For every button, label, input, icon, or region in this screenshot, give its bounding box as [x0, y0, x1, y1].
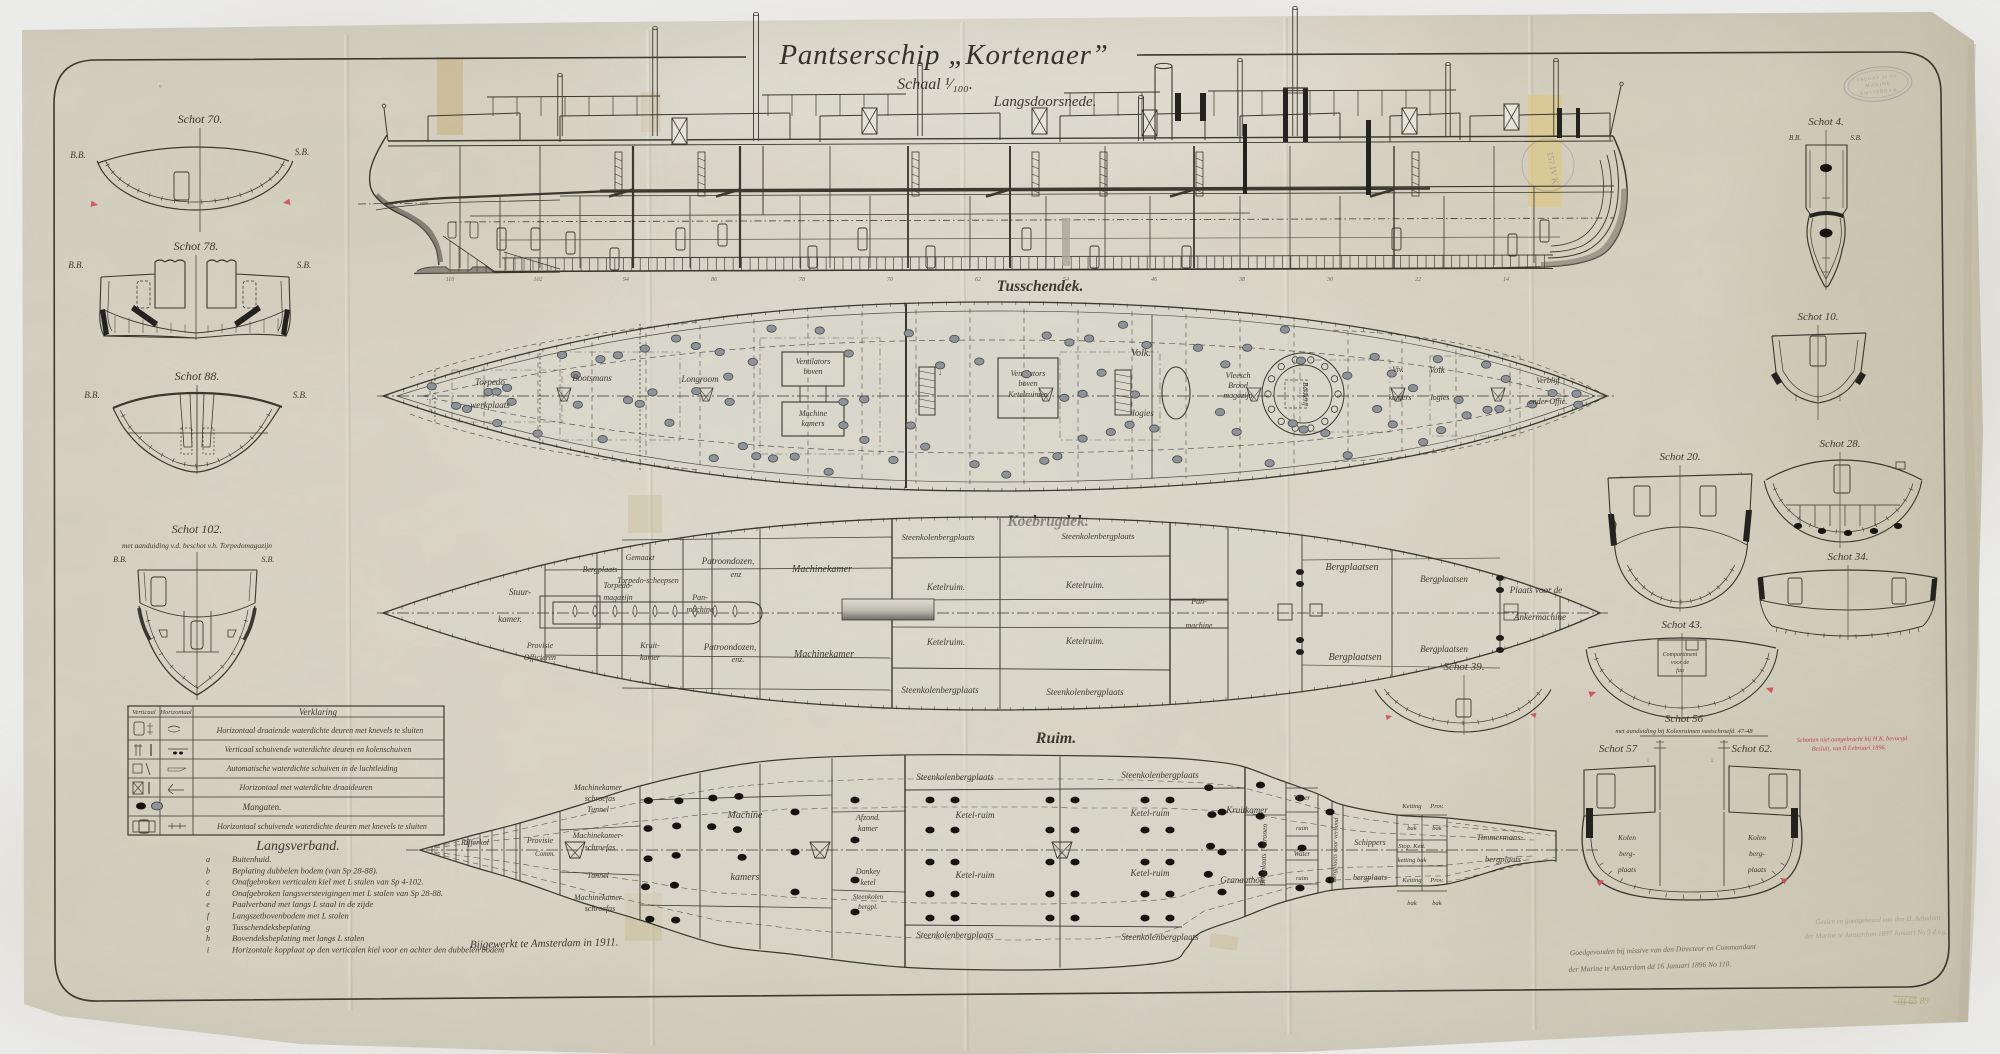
- svg-text:Ketel-ruim: Ketel-ruim: [1130, 868, 1170, 878]
- svg-text:°: °: [159, 84, 162, 92]
- svg-text:↓: ↓: [1646, 756, 1650, 764]
- svg-text:Granaathok: Granaathok: [1220, 875, 1265, 885]
- svg-text:Gemaakt: Gemaakt: [626, 553, 656, 562]
- svg-text:S.B.: S.B.: [297, 260, 312, 270]
- svg-text:Timmermans-: Timmermans-: [1477, 832, 1524, 842]
- svg-text:B.B.: B.B.: [1789, 134, 1801, 142]
- svg-text:Schot 88.: Schot 88.: [175, 369, 220, 383]
- svg-text:110: 110: [446, 277, 455, 283]
- svg-text:Horizontaal met waterdichte dr: Horizontaal met waterdichte draaideuren: [239, 783, 373, 792]
- svg-text:Steenkolen: Steenkolen: [853, 893, 884, 901]
- svg-text:Longroom: Longroom: [680, 374, 719, 384]
- svg-text:Bootsmans: Bootsmans: [572, 373, 612, 383]
- svg-text:c: c: [206, 878, 210, 887]
- svg-text:Machinekamer: Machinekamer: [791, 564, 852, 575]
- svg-text:Water: Water: [1294, 794, 1311, 802]
- svg-text:Horizontaal schuivende waterdi: Horizontaal schuivende waterdichte deure…: [216, 822, 427, 831]
- svg-text:e: e: [206, 900, 210, 909]
- svg-text:Bergplaats: Bergplaats: [583, 565, 618, 574]
- svg-text:Plaats voor de: Plaats voor de: [1509, 585, 1563, 595]
- svg-text:Patroondozen,: Patroondozen,: [701, 556, 754, 566]
- svg-text:boven: boven: [803, 367, 822, 376]
- svg-text:Pan-: Pan-: [1190, 597, 1207, 606]
- svg-text:Stop. Kett.: Stop. Kett.: [1398, 843, 1426, 850]
- svg-text:i: i: [207, 945, 209, 954]
- svg-text:Schot 57: Schot 57: [1599, 743, 1638, 755]
- svg-text:schroefas: schroefas: [585, 843, 615, 852]
- svg-text:Schot 4.: Schot 4.: [1808, 116, 1843, 128]
- svg-text:b: b: [206, 866, 210, 875]
- svg-text:↓: ↓: [938, 368, 942, 377]
- svg-text:Water: Water: [1294, 850, 1311, 858]
- svg-text:schroefas: schroefas: [585, 904, 615, 913]
- svg-text:Stuur-: Stuur-: [509, 587, 531, 597]
- svg-text:Bergplaatsen: Bergplaatsen: [1420, 644, 1468, 654]
- svg-text:Compartiment: Compartiment: [1663, 652, 1698, 658]
- svg-text:Provisie: Provisie: [526, 641, 554, 650]
- svg-text:Donkey: Donkey: [855, 867, 881, 876]
- svg-text:Schot 10.: Schot 10.: [1798, 311, 1839, 323]
- svg-text:Bergplaatsen: Bergplaatsen: [1329, 652, 1382, 663]
- svg-text:berg-: berg-: [1619, 849, 1635, 858]
- svg-text:Steenkolenbergplaats: Steenkolenbergplaats: [1062, 531, 1136, 541]
- svg-text:Verklaring: Verklaring: [299, 707, 337, 717]
- svg-text:Verticaal: Verticaal: [132, 709, 156, 716]
- svg-text:enz: enz: [731, 570, 743, 579]
- svg-text:S.B.: S.B.: [262, 555, 275, 564]
- svg-text:plaats: plaats: [1617, 865, 1636, 874]
- svg-text:Ventilators: Ventilators: [796, 357, 831, 366]
- svg-text:met aanduiding bij Kolenruimen: met aanduiding bij Kolenruimen vastschro…: [1615, 728, 1753, 735]
- svg-text:Vleesch: Vleesch: [1226, 371, 1251, 380]
- svg-text:Verticaal schuivende waterdich: Verticaal schuivende waterdichte deuren …: [225, 745, 412, 754]
- svg-text:22: 22: [1415, 277, 1421, 283]
- svg-text:70: 70: [887, 277, 893, 283]
- svg-text:Steenkolenbergplaats: Steenkolenbergplaats: [1121, 932, 1199, 942]
- svg-text:bergplaats: bergplaats: [1353, 873, 1387, 882]
- svg-text:78: 78: [799, 277, 805, 283]
- svg-text:machine: machine: [686, 605, 714, 614]
- svg-text:Buitenhuid.: Buitenhuid.: [232, 854, 271, 864]
- svg-text:Brood: Brood: [1228, 381, 1249, 390]
- svg-text:Onafgebroken langsversteviging: Onafgebroken langsverstevigingen met L s…: [232, 888, 443, 898]
- svg-text:Ketelruim.: Ketelruim.: [926, 637, 965, 647]
- svg-text:kamers: kamers: [731, 872, 760, 883]
- svg-text:Horizontaal: Horizontaal: [159, 709, 192, 716]
- svg-text:bergplaats: bergplaats: [1485, 854, 1522, 864]
- svg-text:Torpedo: Torpedo: [475, 377, 505, 387]
- svg-text:Steenkolenbergplaats: Steenkolenbergplaats: [916, 930, 994, 940]
- svg-text:Tusschendek.: Tusschendek.: [997, 278, 1084, 295]
- svg-text:Schot 20.: Schot 20.: [1660, 451, 1701, 463]
- svg-text:Bergplaatsen: Bergplaatsen: [1326, 562, 1379, 573]
- svg-text:Patroondozen,: Patroondozen,: [703, 642, 756, 652]
- svg-text:Ketelruim.: Ketelruim.: [926, 582, 965, 592]
- svg-text:Onafgebroken verticalen kiel m: Onafgebroken verticalen kiel met L stale…: [232, 877, 423, 887]
- svg-text:logies: logies: [1132, 408, 1154, 418]
- svg-text:Kruit-: Kruit-: [639, 641, 660, 650]
- svg-text:Ketelruim.: Ketelruim.: [1065, 580, 1104, 590]
- svg-text:plaats: plaats: [1747, 865, 1766, 874]
- svg-text:Schot 56: Schot 56: [1665, 713, 1704, 725]
- svg-text:Horizontaal draaiende waterdic: Horizontaal draaiende waterdichte deuren…: [216, 726, 424, 735]
- svg-text:logies: logies: [1430, 393, 1449, 402]
- svg-text:S.B.: S.B.: [1850, 134, 1862, 142]
- svg-text:Kruitkamer: Kruitkamer: [1225, 805, 1268, 815]
- svg-text:…: …: [427, 394, 433, 402]
- svg-text:Ketel-ruim: Ketel-ruim: [1130, 808, 1170, 818]
- svg-text:Ketting: Ketting: [1401, 877, 1422, 884]
- svg-text:Schippers: Schippers: [1354, 838, 1386, 847]
- svg-text:S.B.: S.B.: [293, 390, 308, 400]
- svg-text:Ketel-ruim: Ketel-ruim: [955, 810, 995, 820]
- svg-text:←: ←: [1619, 472, 1626, 480]
- svg-text:Beplating dubbelen bodem (van: Beplating dubbelen bodem (van Sp 28-88).: [232, 865, 378, 875]
- svg-text:kamer.: kamer.: [498, 614, 522, 624]
- svg-text:ketting bak: ketting bak: [1398, 857, 1427, 864]
- svg-text:g: g: [206, 923, 210, 932]
- svg-text:schroefas: schroefas: [585, 794, 615, 803]
- svg-text:↓: ↓: [1710, 756, 1714, 764]
- svg-text:voor de: voor de: [1671, 660, 1689, 666]
- svg-text:Bergplaatsen: Bergplaatsen: [1420, 574, 1468, 584]
- svg-text:Pan-: Pan-: [691, 593, 708, 602]
- svg-text:Machine: Machine: [798, 409, 827, 418]
- svg-text:Prov.: Prov.: [1429, 803, 1444, 810]
- svg-text:a: a: [206, 855, 210, 864]
- svg-text:B.B.: B.B.: [84, 390, 100, 400]
- svg-text:bak: bak: [1432, 825, 1442, 832]
- svg-text:kamers: kamers: [801, 419, 824, 428]
- svg-text:Steenkolenbergplaats: Steenkolenbergplaats: [916, 772, 994, 782]
- svg-text:Automatische waterdichte schui: Automatische waterdichte schuiven in de …: [226, 764, 398, 773]
- svg-text:met aanduiding v.d. beschot v.: met aanduiding v.d. beschot v.h. Torpedo…: [122, 541, 272, 550]
- svg-text:Rifferkol: Rifferkol: [460, 838, 490, 847]
- svg-text:14: 14: [1503, 276, 1509, 283]
- svg-text:Schaal ¹⁄₁₀₀.: Schaal ¹⁄₁₀₀.: [897, 76, 973, 93]
- svg-text:bak: bak: [1407, 825, 1417, 832]
- svg-text:Tunnel: Tunnel: [587, 805, 610, 814]
- svg-text:Steenkolenbergplaats: Steenkolenbergplaats: [1121, 770, 1199, 780]
- svg-text:kamer: kamer: [640, 653, 661, 662]
- svg-text:h: h: [206, 934, 210, 943]
- svg-text:ruim: ruim: [1296, 875, 1309, 882]
- svg-text:bak: bak: [1432, 900, 1442, 907]
- svg-text:B.B.: B.B.: [68, 260, 84, 270]
- svg-text:Provisie: Provisie: [526, 836, 554, 845]
- svg-text:Besluit, van 8 Februari 1896.: Besluit, van 8 Februari 1896.: [1812, 744, 1887, 752]
- svg-text:Schot 78.: Schot 78.: [174, 239, 219, 253]
- svg-text:Afzond.: Afzond.: [855, 813, 880, 822]
- svg-text:Paalverband met langs L staal: Paalverband met langs L staal in de zijd…: [231, 899, 373, 909]
- svg-text:102: 102: [534, 277, 543, 283]
- svg-text:Schot 62.: Schot 62.: [1732, 743, 1773, 755]
- svg-text:bak: bak: [1407, 900, 1417, 907]
- svg-text:38: 38: [1238, 277, 1245, 283]
- svg-text:magazijn: magazijn: [1223, 391, 1252, 400]
- svg-text:werkplaats: werkplaats: [470, 400, 510, 410]
- svg-text:Kolen: Kolen: [1617, 833, 1636, 842]
- svg-text:Mangaten.: Mangaten.: [242, 802, 282, 812]
- svg-text:Kolen: Kolen: [1747, 833, 1766, 842]
- svg-text:Volk.: Volk.: [1131, 348, 1151, 359]
- svg-text:Machinekamer: Machinekamer: [793, 649, 854, 660]
- svg-text:Ruim.: Ruim.: [1035, 730, 1076, 747]
- svg-text:Viv.: Viv.: [1392, 365, 1403, 374]
- svg-text:Comm.: Comm.: [535, 850, 555, 858]
- svg-text:fan: fan: [1676, 667, 1684, 674]
- svg-text:Ankermachine: Ankermachine: [1513, 612, 1566, 622]
- svg-text:ruim: ruim: [1296, 825, 1309, 832]
- svg-text:kamers: kamers: [1388, 393, 1411, 402]
- svg-text:Tusschendeksbeplating: Tusschendeksbeplating: [232, 922, 310, 932]
- svg-text:Steenkolenbergplaats: Steenkolenbergplaats: [902, 532, 976, 542]
- svg-text:Torpedo-scheepsen: Torpedo-scheepsen: [617, 576, 678, 585]
- svg-text:62: 62: [975, 277, 981, 283]
- svg-text:Verblijf: Verblijf: [1536, 376, 1561, 385]
- svg-text:Pantserschip „Kortenaer”: Pantserschip „Kortenaer”: [778, 39, 1108, 71]
- svg-text:Ketelruim.: Ketelruim.: [1065, 636, 1104, 646]
- svg-text:B.B.: B.B.: [70, 150, 86, 160]
- svg-text:Langsverband.: Langsverband.: [255, 839, 340, 854]
- svg-text:→: →: [1737, 468, 1744, 476]
- svg-text:94: 94: [623, 276, 629, 283]
- svg-text:86: 86: [711, 277, 717, 283]
- svg-text:Bakkerij: Bakkerij: [1301, 382, 1309, 406]
- svg-text:Schot 34.: Schot 34.: [1828, 551, 1869, 563]
- svg-text:Steenkolenbergplaats: Steenkolenbergplaats: [1046, 687, 1124, 697]
- svg-text:Schot 102.: Schot 102.: [172, 522, 223, 536]
- svg-text:Steenkolenbergplaats: Steenkolenbergplaats: [901, 685, 979, 695]
- svg-text:Machinekamer-: Machinekamer-: [572, 831, 624, 840]
- svg-text:Horizontale kopplaat op den ve: Horizontale kopplaat op den verticalen k…: [231, 944, 504, 954]
- svg-text:ketel: ketel: [860, 878, 876, 887]
- svg-text:Schot 28.: Schot 28.: [1820, 438, 1861, 450]
- svg-text:30: 30: [1326, 277, 1333, 283]
- svg-text:boven: boven: [1018, 379, 1037, 388]
- svg-text:Machine: Machine: [727, 810, 764, 821]
- svg-text:Machinekamer: Machinekamer: [573, 783, 623, 792]
- svg-text:kamer: kamer: [858, 824, 879, 833]
- svg-text:bergpl.: bergpl.: [858, 903, 878, 911]
- svg-text:Machinekamer: Machinekamer: [573, 893, 623, 902]
- svg-text:Schot 39.: Schot 39.: [1444, 661, 1485, 673]
- svg-text:Bovendeksbeplating met langs L: Bovendeksbeplating met langs L stalen: [232, 933, 365, 943]
- svg-text:onder Offic.: onder Offic.: [1529, 397, 1568, 406]
- svg-text:Langszetbovenbodem met L stale: Langszetbovenbodem met L stalen: [231, 911, 349, 921]
- svg-text:Schot 70.: Schot 70.: [178, 112, 223, 126]
- svg-text:Volk: Volk: [1429, 365, 1446, 375]
- svg-text:Ketting: Ketting: [1401, 803, 1422, 810]
- svg-text:machine: machine: [1185, 621, 1213, 630]
- svg-text:46: 46: [1151, 276, 1157, 283]
- svg-text:enz.: enz.: [732, 655, 745, 664]
- svg-text:Ketel-ruim: Ketel-ruim: [955, 870, 995, 880]
- svg-text:magazijn: magazijn: [603, 593, 632, 602]
- svg-text:Tunnel: Tunnel: [587, 871, 610, 880]
- svg-text:Schot 43.: Schot 43.: [1662, 619, 1703, 631]
- svg-text:Prov.: Prov.: [1429, 877, 1444, 884]
- svg-text:Officieren: Officieren: [524, 653, 556, 662]
- svg-text:B.B.: B.B.: [113, 555, 127, 564]
- svg-text:S.B.: S.B.: [295, 147, 310, 157]
- svg-text:berg-: berg-: [1749, 849, 1765, 858]
